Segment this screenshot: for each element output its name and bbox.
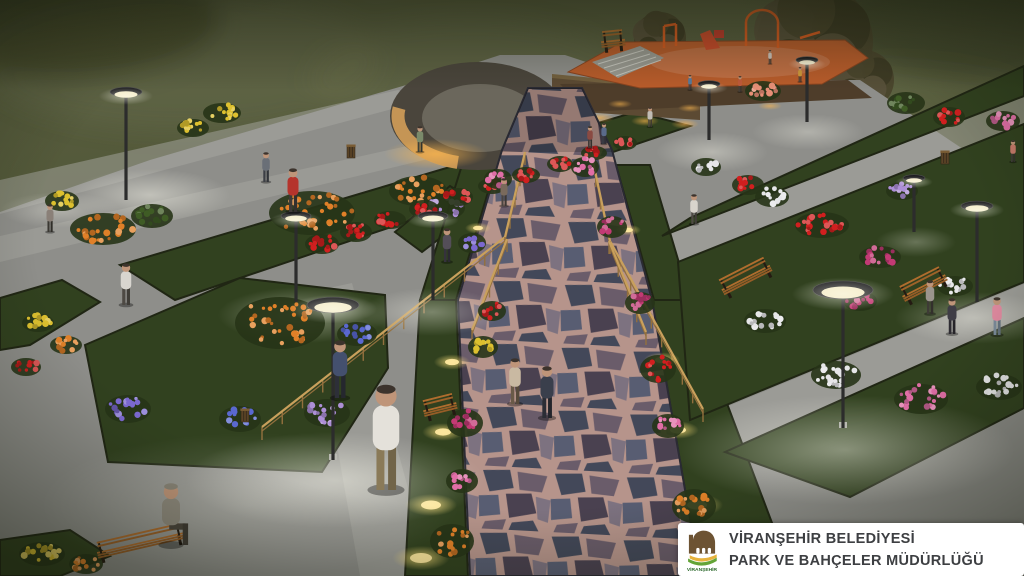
arch-1 [696, 548, 699, 554]
arch-2 [702, 548, 705, 554]
municipality-logo-card: VİRANŞEHİR VİRANŞEHİR BELEDİYESİ PARK VE… [678, 523, 1024, 576]
park-render-image: VİRANŞEHİR VİRANŞEHİR BELEDİYESİ PARK VE… [0, 0, 1024, 576]
watermark-text: VİRANŞEHİR BELEDİYESİ PARK VE BAHÇELER M… [729, 528, 984, 572]
municipality-logo: VİRANŞEHİR [684, 526, 720, 573]
watermark-line1: VİRANŞEHİR BELEDİYESİ [729, 528, 984, 550]
minaret-shape [689, 535, 693, 554]
logo-small-text: VİRANŞEHİR [687, 566, 718, 573]
watermark-line2: PARK VE BAHÇELER MÜDÜRLÜĞÜ [729, 550, 984, 572]
arch-3 [708, 548, 711, 554]
park-scene [0, 0, 1024, 576]
vignette [0, 0, 1024, 576]
